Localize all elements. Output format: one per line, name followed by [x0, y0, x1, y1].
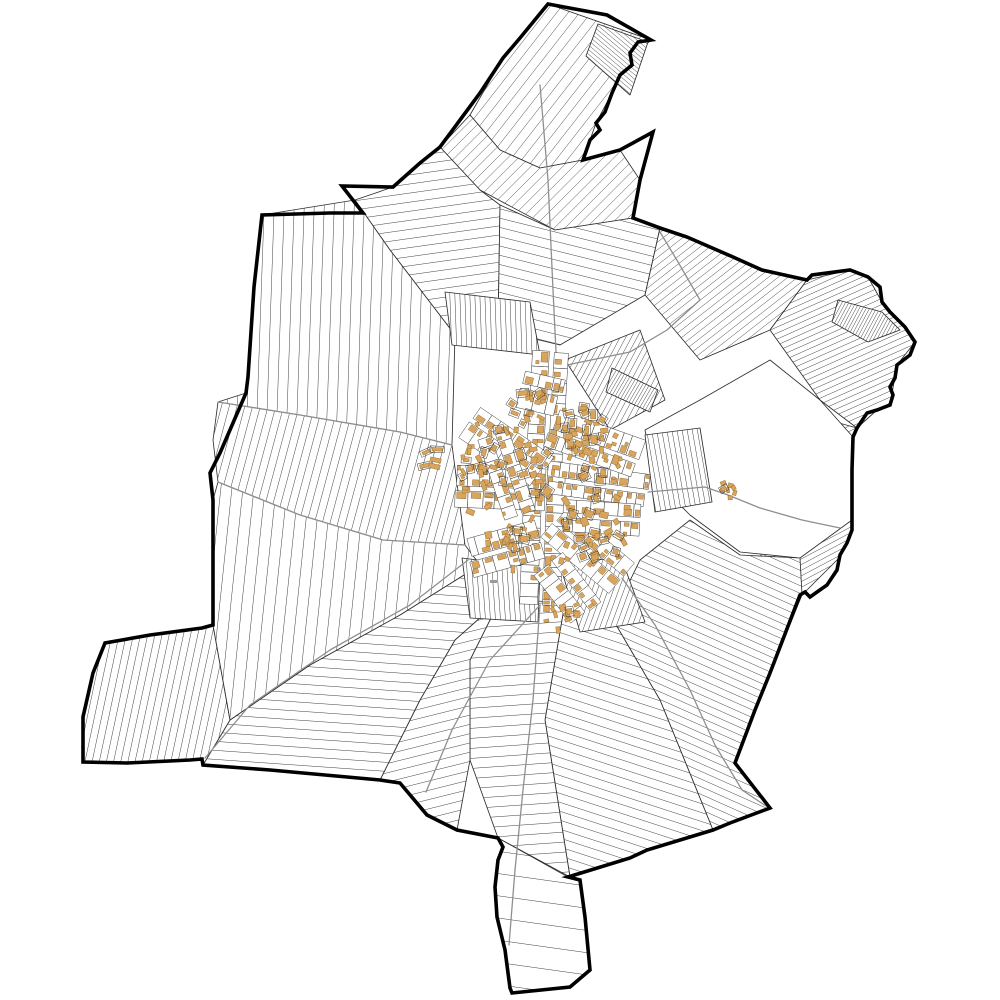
building	[514, 427, 519, 433]
building	[566, 485, 571, 490]
building	[538, 501, 542, 506]
building	[500, 478, 505, 484]
building	[618, 457, 622, 461]
building	[531, 490, 539, 495]
building	[552, 465, 559, 470]
building	[564, 433, 572, 440]
building	[562, 471, 567, 477]
building	[601, 521, 610, 526]
building	[524, 442, 531, 448]
building	[628, 493, 632, 499]
building	[545, 382, 552, 389]
building	[547, 506, 553, 512]
building	[536, 360, 539, 363]
parcel	[520, 583, 538, 597]
building	[467, 466, 472, 471]
building	[471, 492, 481, 498]
building	[560, 387, 564, 392]
building	[606, 490, 612, 494]
building	[567, 441, 573, 447]
building	[585, 487, 594, 494]
building	[591, 411, 596, 419]
building	[531, 457, 538, 464]
building	[462, 486, 468, 490]
building	[486, 540, 491, 547]
building	[558, 483, 562, 488]
building	[600, 428, 608, 434]
building	[612, 548, 618, 554]
building	[576, 537, 582, 541]
building	[514, 528, 521, 533]
building	[562, 425, 567, 431]
building	[646, 475, 650, 479]
building	[632, 523, 638, 529]
building	[525, 376, 534, 384]
building	[461, 454, 465, 459]
building	[589, 456, 595, 463]
building	[556, 417, 561, 425]
parcel	[571, 484, 585, 498]
building	[535, 479, 543, 485]
building	[538, 439, 544, 443]
building	[432, 447, 442, 451]
building	[520, 421, 525, 426]
building	[585, 426, 589, 434]
building	[495, 426, 502, 432]
building	[518, 390, 528, 395]
building	[488, 430, 492, 437]
map-canvas	[0, 0, 1000, 1000]
building	[624, 505, 631, 510]
building	[544, 601, 550, 604]
building	[569, 472, 575, 478]
building	[612, 477, 615, 480]
building	[534, 567, 538, 572]
building	[466, 508, 475, 516]
building	[551, 469, 555, 475]
building	[619, 478, 627, 485]
building	[568, 511, 576, 519]
building	[511, 565, 515, 573]
parcel	[520, 596, 538, 604]
building	[556, 627, 561, 634]
building	[596, 475, 603, 484]
building	[473, 568, 479, 574]
building	[573, 486, 577, 490]
building	[624, 523, 629, 527]
building	[537, 426, 544, 433]
building	[520, 535, 529, 542]
building	[593, 422, 599, 426]
building	[555, 359, 562, 364]
building	[600, 469, 606, 476]
building	[551, 601, 554, 607]
building	[530, 396, 534, 402]
building	[546, 548, 552, 551]
building	[570, 420, 575, 427]
building	[595, 533, 600, 540]
building	[567, 608, 573, 614]
building	[580, 545, 587, 551]
cadastral-map-svg	[0, 0, 1000, 1000]
building	[541, 352, 548, 362]
building	[728, 496, 732, 500]
building	[536, 495, 543, 501]
building	[554, 372, 560, 377]
building	[579, 407, 587, 410]
building	[599, 446, 603, 453]
building	[511, 410, 519, 416]
building	[574, 612, 581, 618]
field-block-gardens-e	[645, 428, 712, 512]
building	[478, 469, 483, 477]
map-symbol	[490, 580, 497, 583]
building	[547, 515, 554, 522]
building	[485, 531, 493, 539]
building	[638, 494, 644, 499]
building	[645, 482, 649, 488]
building	[457, 466, 460, 471]
building	[543, 606, 549, 612]
building	[508, 400, 515, 407]
building	[472, 480, 478, 486]
building	[635, 510, 640, 516]
building	[537, 473, 545, 477]
building	[467, 448, 471, 454]
building	[589, 542, 593, 547]
building	[502, 541, 506, 545]
